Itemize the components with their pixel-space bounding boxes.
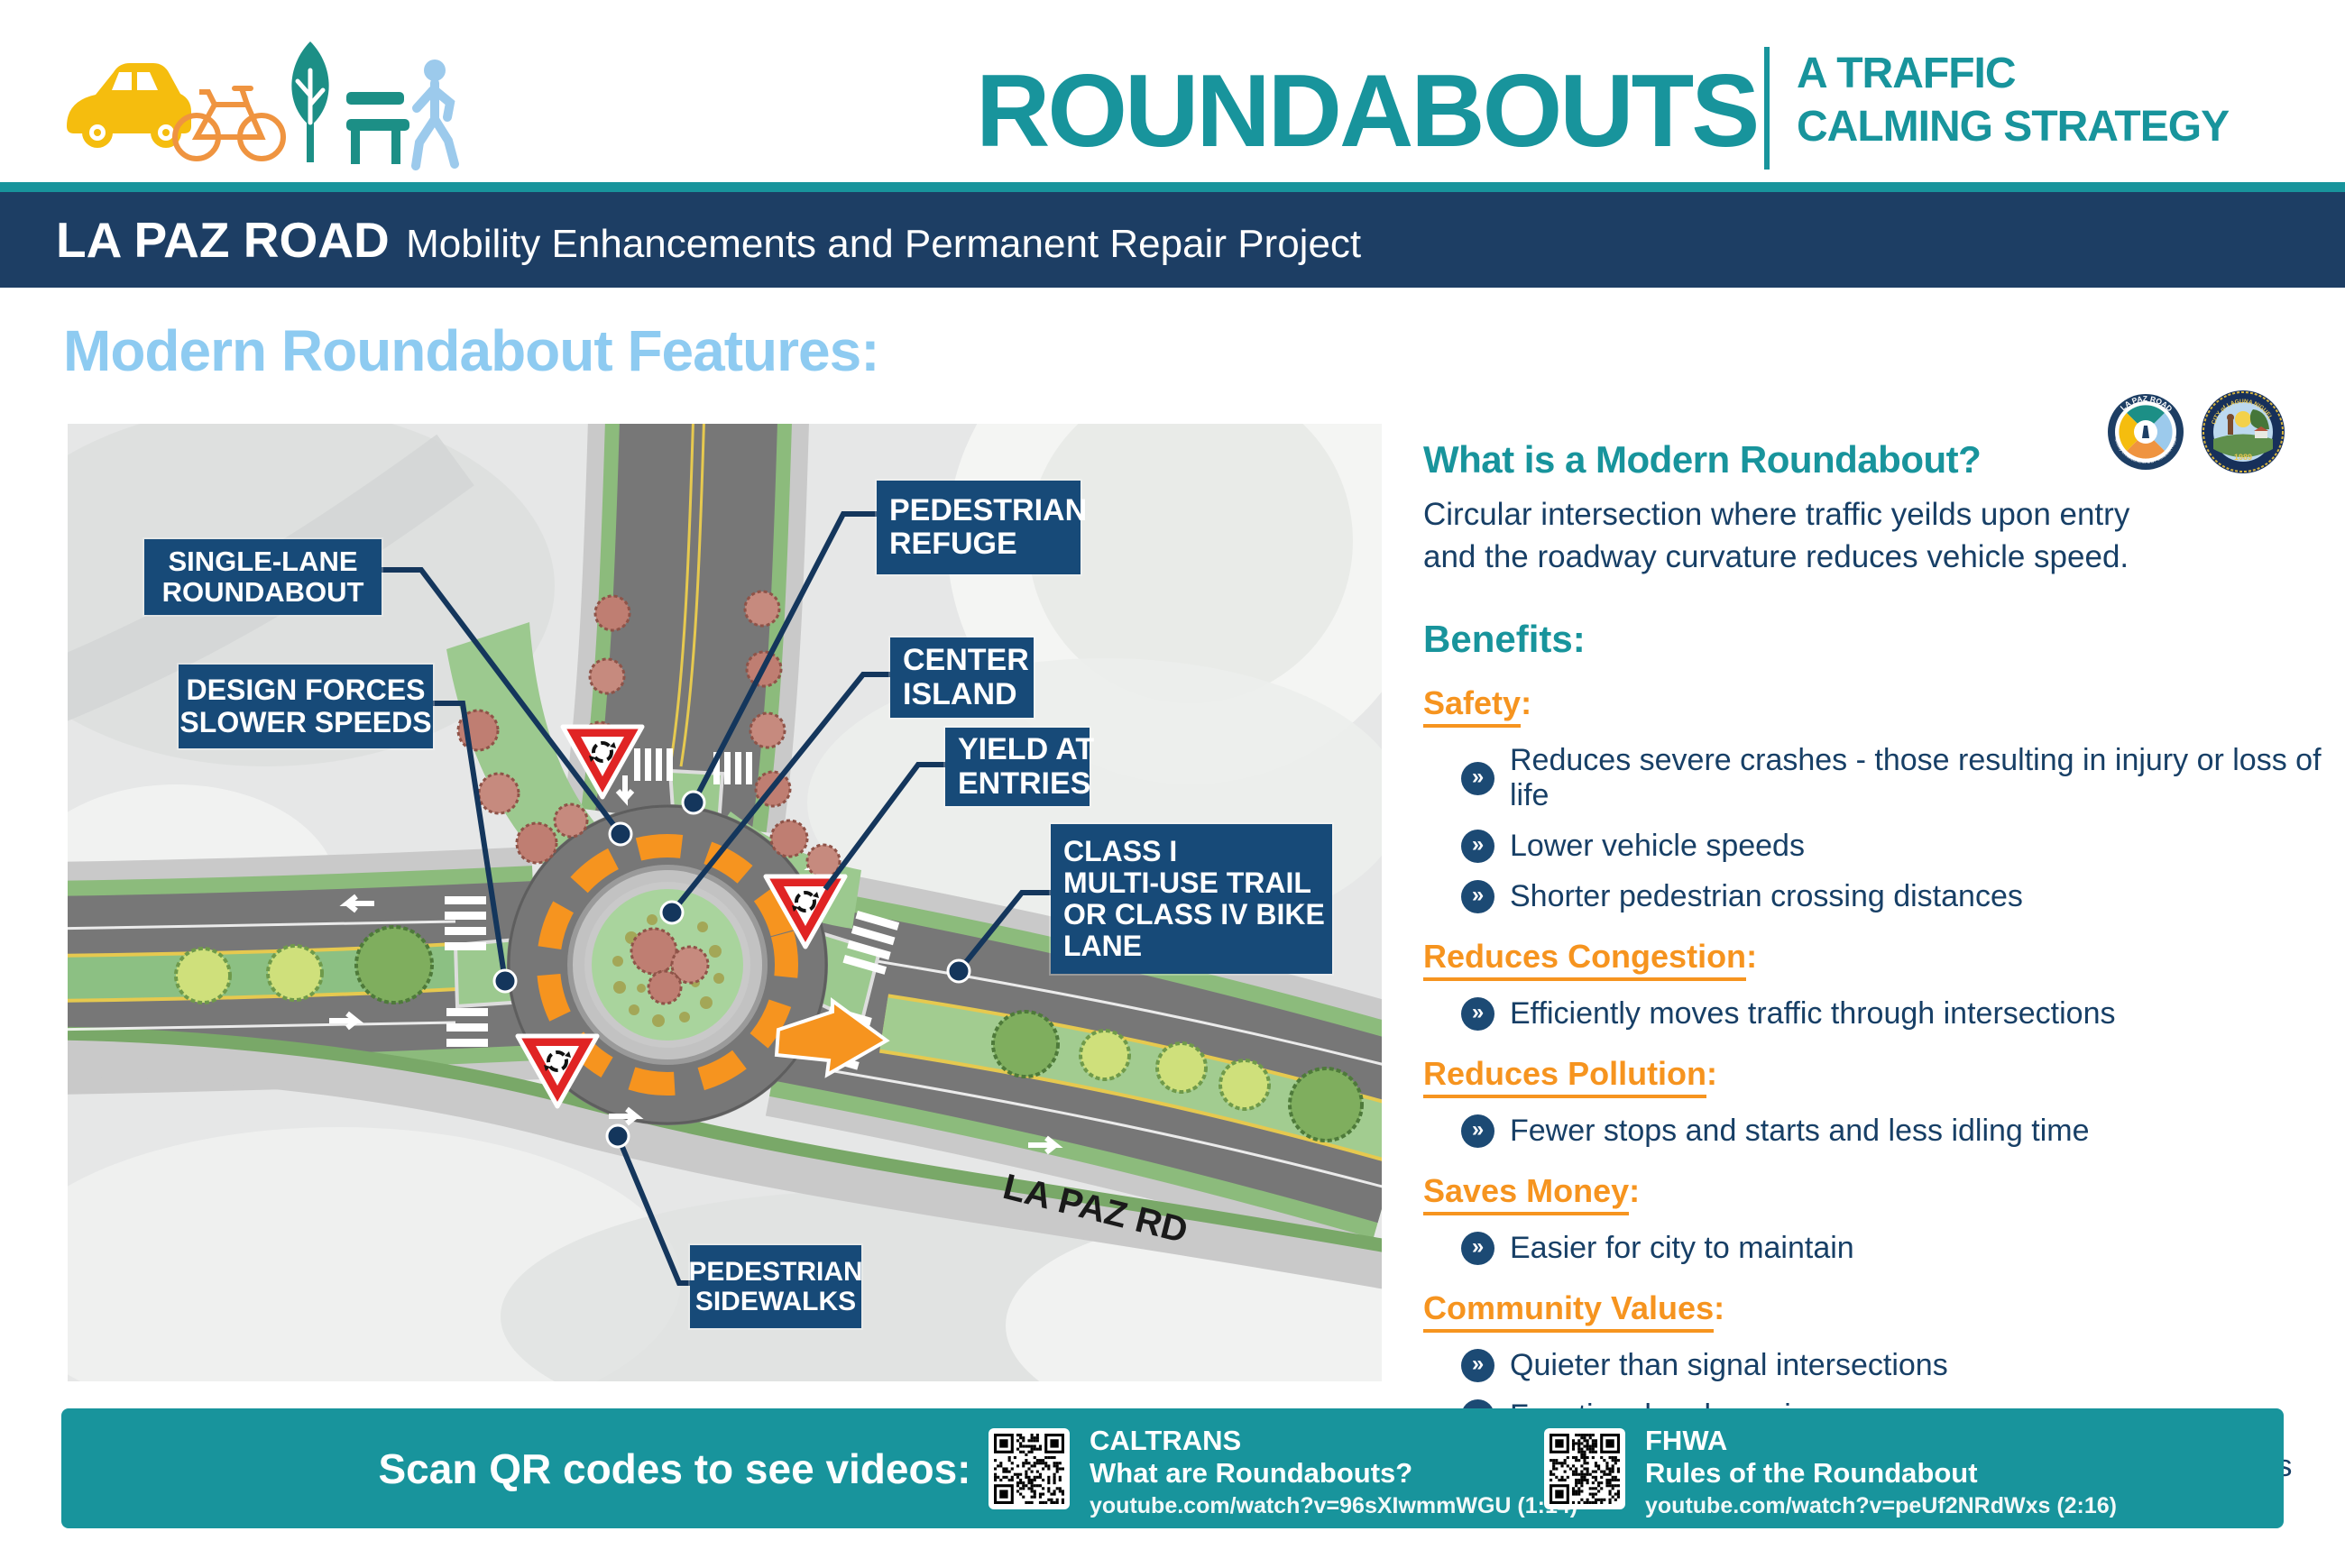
callout-single-lane-roundabout: SINGLE-LANEROUNDABOUT — [144, 539, 382, 615]
benefit-group-title: Reduces Pollution — [1423, 1055, 1706, 1098]
callout-pedestrian-refuge: PEDESTRIANREFUGE — [877, 481, 1081, 574]
callout-design-forces-slower-speeds: DESIGN FORCESSLOWER SPEEDS — [179, 665, 433, 748]
benefit-item: »Efficiently moves traffic through inter… — [1461, 996, 2325, 1032]
qr-code-caltrans[interactable] — [989, 1428, 1070, 1509]
benefit-group-title: Reduces Congestion — [1423, 938, 1746, 981]
banner-text: LA PAZ ROAD Mobility Enhancements and Pe… — [56, 211, 1361, 269]
header-icons — [60, 36, 465, 185]
benefit-item: »Quieter than signal intersections — [1461, 1348, 2325, 1383]
callout-yield-at-entries: YIELD ATENTRIES — [945, 728, 1090, 806]
benefit-item-text: Quieter than signal intersections — [1510, 1348, 1948, 1383]
benefit-item-text: Lower vehicle speeds — [1510, 829, 1805, 864]
benefits-heading: Benefits: — [1423, 618, 2325, 661]
video-title: Rules of the Roundabout — [1645, 1457, 2117, 1490]
banner-subtitle: Mobility Enhancements and Permanent Repa… — [406, 222, 1361, 266]
question-heading: What is a Modern Roundabout? — [1423, 438, 2325, 481]
tree-icon — [291, 41, 328, 162]
benefit-group: Safety:»Reduces severe crashes - those r… — [1423, 684, 2325, 914]
chevron-bullet-icon: » — [1461, 997, 1494, 1031]
callout-center-island: CENTERISLAND — [890, 637, 1034, 718]
benefit-group-colon: : — [1714, 1289, 1724, 1326]
video-org: CALTRANS — [1090, 1425, 1577, 1457]
video-caltrans: CALTRANS What are Roundabouts? youtube.c… — [1090, 1425, 1577, 1519]
benefit-item: »Fewer stops and starts and less idling … — [1461, 1114, 2325, 1149]
bench-icon — [346, 92, 409, 164]
chevron-bullet-icon: » — [1461, 1114, 1494, 1148]
page-title: ROUNDABOUTS — [976, 52, 1757, 170]
benefit-item: »Reduces severe crashes - those resultin… — [1461, 743, 2325, 813]
benefit-item-text: Reduces severe crashes - those resulting… — [1510, 743, 2325, 813]
subtitle-line2: CALMING STRATEGY — [1797, 103, 2229, 151]
benefit-group: Reduces Pollution:»Fewer stops and start… — [1423, 1055, 2325, 1149]
benefit-item-text: Shorter pedestrian crossing distances — [1510, 879, 2023, 914]
project-banner: LA PAZ ROAD Mobility Enhancements and Pe… — [0, 192, 2345, 288]
video-title: What are Roundabouts? — [1090, 1457, 1577, 1490]
roundabout-map: LA PAZ RD SINGLE-LANEROUNDABOUT DESIGN F… — [68, 424, 1382, 1381]
benefit-group-colon: : — [1521, 684, 1531, 721]
callout-class-i-trail: CLASS IMULTI-USE TRAIL OR CLASS IV BIKEL… — [1051, 824, 1332, 974]
benefit-group-colon: : — [1746, 938, 1757, 975]
benefit-item: »Shorter pedestrian crossing distances — [1461, 879, 2325, 914]
benefit-group-title: Safety — [1423, 684, 1521, 728]
benefits-list: Safety:»Reduces severe crashes - those r… — [1423, 684, 2325, 1484]
benefit-item-text: Efficiently moves traffic through inters… — [1510, 996, 2116, 1032]
benefit-item-text: Fewer stops and starts and less idling t… — [1510, 1114, 2090, 1149]
benefit-group-colon: : — [1629, 1172, 1640, 1209]
benefit-item: »Lower vehicle speeds — [1461, 829, 2325, 864]
benefit-group-title: Community Values — [1423, 1289, 1714, 1333]
video-url: youtube.com/watch?v=96sXIwmmWGU (1:14) — [1090, 1493, 1577, 1519]
video-url: youtube.com/watch?v=peUf2NRdWxs (2:16) — [1645, 1493, 2117, 1519]
chevron-bullet-icon: » — [1461, 830, 1494, 863]
subtitle-line1: A TRAFFIC — [1797, 50, 2016, 97]
scan-qr-text: Scan QR codes to see videos: — [332, 1408, 1017, 1528]
info-panel: What is a Modern Roundabout? Circular in… — [1423, 438, 2325, 1484]
benefit-item: »Easier for city to maintain — [1461, 1231, 2325, 1266]
benefit-group-colon: : — [1706, 1055, 1717, 1092]
page-subtitle: A TRAFFIC CALMING STRATEGY — [1797, 47, 2229, 153]
benefit-item-text: Easier for city to maintain — [1510, 1231, 1854, 1266]
benefit-group-title: Saves Money — [1423, 1172, 1629, 1215]
teal-divider-strip — [0, 182, 2345, 192]
video-org: FHWA — [1645, 1425, 2117, 1457]
chevron-bullet-icon: » — [1461, 880, 1494, 913]
pedestrian-icon — [416, 60, 455, 166]
benefit-group: Reduces Congestion:»Efficiently moves tr… — [1423, 938, 2325, 1032]
title-divider — [1764, 47, 1770, 170]
qr-code-fhwa[interactable] — [1544, 1428, 1625, 1509]
question-body: Circular intersection where traffic yeil… — [1423, 494, 2325, 578]
chevron-bullet-icon: » — [1461, 1349, 1494, 1382]
banner-title: LA PAZ ROAD — [56, 212, 390, 268]
chevron-bullet-icon: » — [1461, 1232, 1494, 1265]
section-heading: Modern Roundabout Features: — [63, 317, 879, 384]
footer-bar: Scan QR codes to see videos: CALTRANS Wh… — [61, 1408, 2284, 1528]
benefit-group: Saves Money:»Easier for city to maintain — [1423, 1172, 2325, 1266]
chevron-bullet-icon: » — [1461, 762, 1494, 795]
poster: ROUNDABOUTS A TRAFFIC CALMING STRATEGY L… — [0, 0, 2345, 1568]
video-fhwa: FHWA Rules of the Roundabout youtube.com… — [1645, 1425, 2117, 1519]
callout-pedestrian-sidewalks: PEDESTRIANSIDEWALKS — [690, 1245, 861, 1328]
